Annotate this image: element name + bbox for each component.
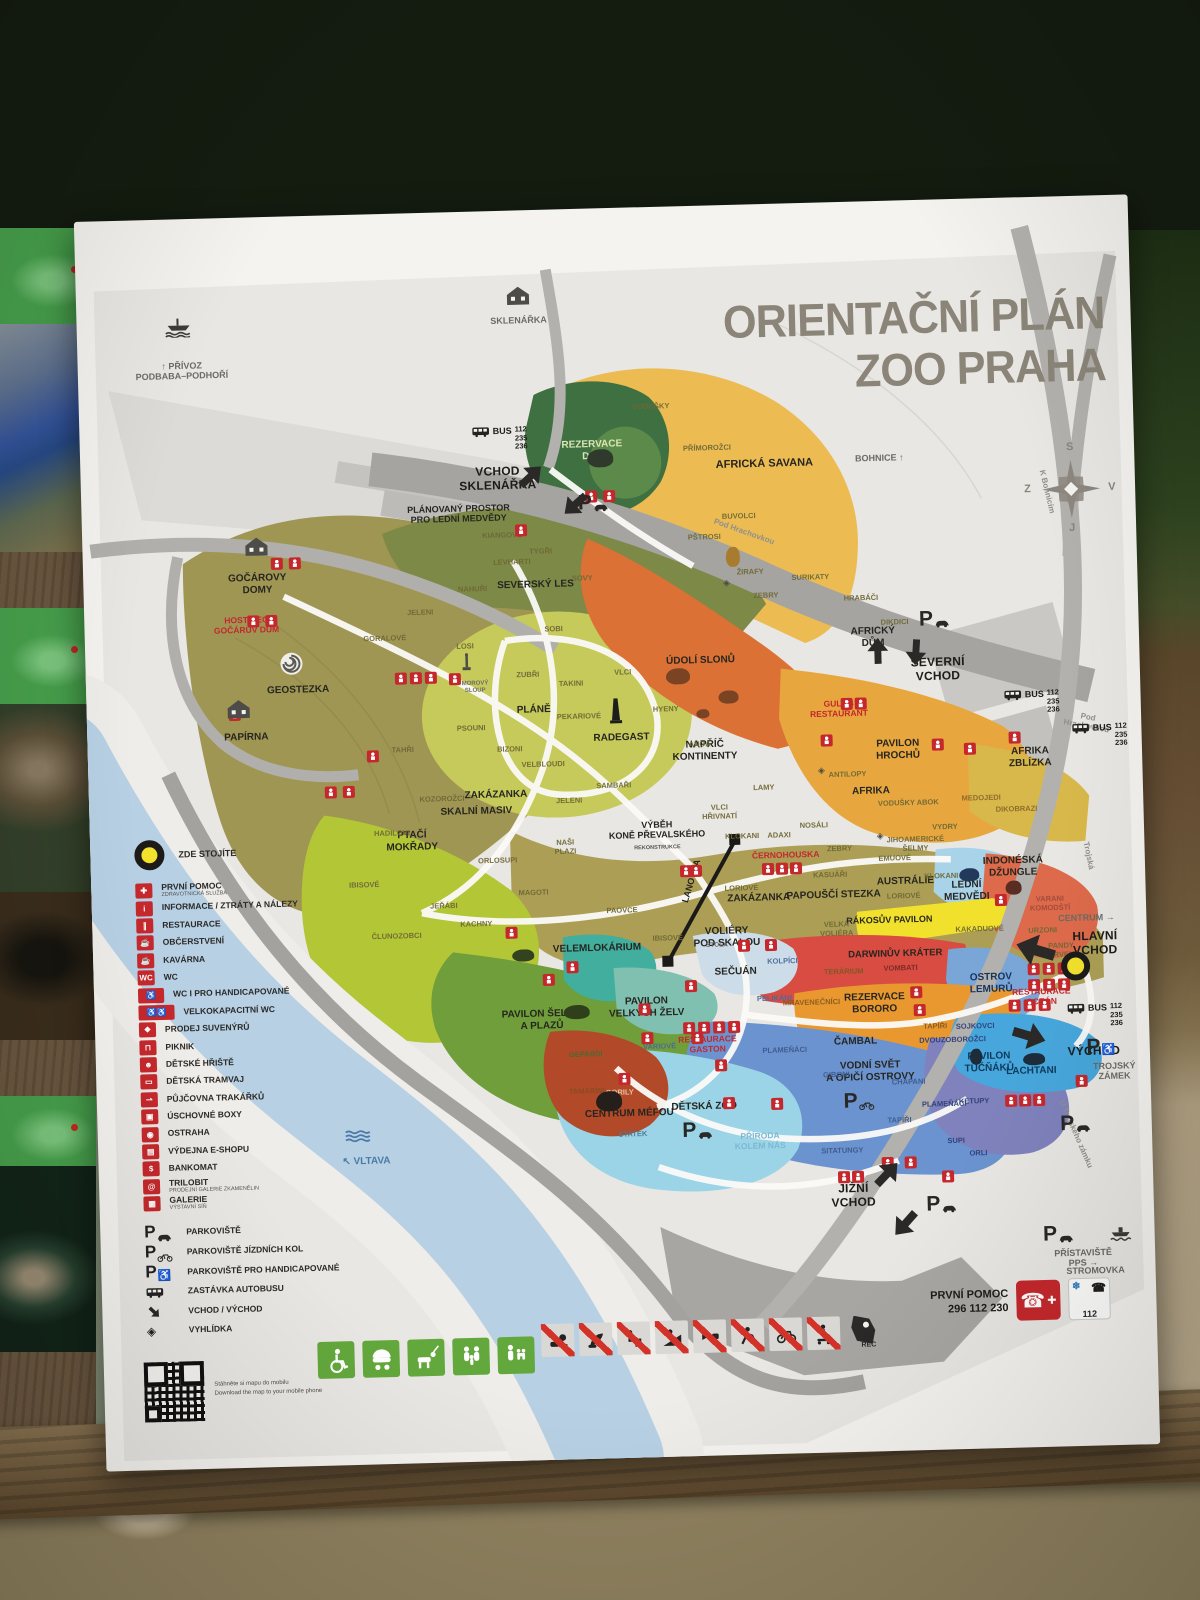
cart-rental-icon: ⇀ — [141, 1092, 158, 1107]
facility-icon — [343, 786, 355, 798]
wood-frame — [0, 552, 96, 608]
viewpoint-icon: ◈ — [877, 831, 884, 842]
legend-item-label: ZASTÁVKA AUTOBUSU — [188, 1284, 284, 1296]
playground-icon: ☻ — [140, 1057, 157, 1072]
gallery-icon: ▦ — [143, 1196, 160, 1211]
legend-item-label: PIKNIK — [165, 1042, 194, 1052]
parking-handicap-icon: P♿ — [145, 1262, 180, 1283]
legend-item-label: PARKOVIŠTĚ JÍZDNÍCH KOL — [187, 1244, 304, 1256]
facility-icon — [1019, 1094, 1031, 1106]
legend-item-label: PŮJČOVNA TRAKÁŘKŮ — [167, 1092, 265, 1104]
entrance-exit-icon — [146, 1304, 180, 1319]
first-aid-phone: 296 112 230 — [930, 1301, 1008, 1317]
facility-icon — [942, 1170, 954, 1182]
facility-icon — [325, 786, 337, 798]
facility-icon — [1058, 978, 1070, 990]
photo-of-zoo-map-sign: ORIENTAČNÍ PLÁN ZOO PRAHA S V J Z PLÁNOV… — [0, 0, 1200, 1600]
side-panel-photo-dark-animal — [0, 892, 96, 1040]
sign-title: ORIENTAČNÍ PLÁN ZOO PRAHA — [723, 287, 1107, 400]
no-feeding-icon — [541, 1323, 575, 1357]
facility-icon — [449, 673, 461, 685]
you-are-here-label: ZDE STOJÍTE — [178, 848, 236, 860]
facility-icon — [728, 1021, 740, 1033]
no-segway-icon — [807, 1316, 841, 1350]
facility-icon — [932, 738, 944, 750]
facility-icon — [995, 894, 1007, 906]
no-climbing-icon — [655, 1320, 689, 1354]
emergency-112-icon: 112 — [1068, 1277, 1111, 1320]
no-running-icon — [731, 1318, 765, 1352]
facility-icon — [855, 697, 867, 709]
dog-on-leash-icon — [407, 1339, 445, 1377]
legend-item-label: DĚTSKÉ HŘIŠTĚ — [166, 1058, 234, 1069]
facility-icon — [841, 698, 853, 710]
compass-west: Z — [1024, 483, 1031, 495]
facility-icon — [1033, 1094, 1045, 1106]
you-are-here-legend: ZDE STOJÍTE — [134, 834, 403, 871]
parking-bike-icon: P — [145, 1242, 180, 1263]
security-icon: ◉ — [142, 1127, 159, 1142]
tram-icon: ▭ — [140, 1075, 157, 1090]
facility-icon — [713, 1021, 725, 1033]
compass-east: V — [1108, 481, 1116, 493]
gorilla-silhouette-icon — [596, 1091, 623, 1112]
wood-frame — [0, 1040, 96, 1096]
parking-icon: P♿ — [1086, 1039, 1115, 1057]
legend-items: ✚PRVNÍ POMOCZDRAVOTNICKÁ SLUŽBAiINFORMAC… — [135, 876, 412, 1213]
facility-icon — [691, 1032, 703, 1044]
facility-icon — [247, 615, 259, 627]
parking-icon: P — [919, 611, 950, 629]
legend-item-label: OSTRAHA — [168, 1128, 210, 1138]
elephant-silhouette-icon — [718, 690, 738, 704]
facility-icon — [910, 986, 922, 998]
legend-item-label: PRODEJ SUVENÝRŮ — [165, 1023, 250, 1035]
cafe-icon: ☕ — [137, 953, 154, 968]
compass-south: J — [1069, 522, 1075, 534]
facility-icon — [641, 1032, 653, 1044]
facility-icon — [1075, 1075, 1087, 1087]
facility-icon — [543, 974, 555, 986]
emergency-phone-icon: ☎✚ — [1016, 1280, 1061, 1321]
facility-icon — [790, 862, 802, 874]
wheelchair-icon — [317, 1341, 355, 1379]
large-wc-icon: ♿♿ — [138, 1005, 174, 1021]
side-panel-minimap — [0, 608, 96, 704]
side-panel-photo-pangolin — [0, 704, 96, 892]
facility-icon — [566, 961, 578, 973]
facility-icon — [638, 1003, 650, 1015]
bus-stop-icon: BUS112 235 236 — [1072, 722, 1128, 749]
facility-icon — [425, 672, 437, 684]
facility-icon — [685, 980, 697, 992]
side-panel-minimap — [0, 1096, 96, 1166]
facility-icon — [690, 865, 702, 877]
facility-icon — [765, 939, 777, 951]
legend-item-label: PRVNÍ POMOCZDRAVOTNICKÁ SLUŽBA — [161, 881, 227, 898]
elephant-silhouette-icon — [666, 668, 690, 685]
stroller-icon — [362, 1340, 400, 1378]
parking-icon: P — [843, 1093, 874, 1111]
side-panel-photo-paw — [0, 1166, 96, 1352]
facility-icon — [1043, 979, 1055, 991]
legend-item-label: VELKOKAPACITNÍ WC — [183, 1005, 275, 1017]
legend-item-label: VYHLÍDKA — [189, 1324, 233, 1334]
legend-item-label: GALERIEVÝSTAVNÍ SÍŇ — [169, 1195, 207, 1211]
legend-item-label: DĚTSKÁ TRAMVAJ — [166, 1075, 244, 1086]
gorilla-silhouette-icon — [587, 449, 613, 468]
tiger-silhouette-icon — [512, 949, 534, 962]
lion-silhouette-icon — [563, 1005, 589, 1020]
facility-icon — [1008, 731, 1020, 743]
snack-icon: ☕ — [137, 936, 154, 951]
restaurant-icon: ∥ — [136, 918, 153, 933]
viewpoint-icon: ◈ — [723, 577, 730, 588]
facility-icon — [715, 1059, 727, 1071]
picnic-icon: ⊓ — [139, 1040, 156, 1055]
legend-item-label: PARKOVIŠTĚ — [186, 1226, 241, 1237]
guided-group-icon — [497, 1336, 535, 1374]
no-teasing-animals-icon — [693, 1319, 727, 1353]
entrance-arrow-icon — [867, 638, 893, 665]
facility-icon — [618, 1073, 630, 1085]
facility-icon — [771, 1098, 783, 1110]
title-line-2: ZOO PRAHA — [724, 339, 1107, 400]
viewpoint-icon: ◈ — [818, 765, 825, 776]
bus-stop-icon: BUS112 235 236 — [1067, 1002, 1123, 1029]
facility-icon — [905, 1156, 917, 1168]
parking-icon: P — [1060, 1115, 1091, 1133]
legend-item-label: WC — [164, 973, 178, 983]
map-legend: ZDE STOJÍTE ✚PRVNÍ POMOCZDRAVOTNICKÁ SLU… — [134, 834, 415, 1341]
facility-icon — [820, 734, 832, 746]
sea-lion-silhouette-icon — [1023, 1053, 1045, 1066]
facility-icon — [515, 524, 527, 536]
facility-icon — [852, 1171, 864, 1183]
legend-item-label: TRILOBITPRODEJNÍ GALERIE ZKAMENĚLIN — [169, 1176, 259, 1194]
accessibility-icons-row — [317, 1336, 535, 1379]
polar-bear-silhouette-icon — [959, 868, 979, 882]
no-littering-icon — [617, 1321, 651, 1355]
info-icon: i — [136, 901, 153, 916]
svg-text:REC: REC — [861, 1341, 876, 1348]
facility-icon — [914, 1004, 926, 1016]
facility-icon — [776, 863, 788, 875]
legend-item-label: BANKOMAT — [169, 1163, 218, 1174]
parking-car-icon: P — [144, 1222, 179, 1243]
facility-icon — [265, 615, 277, 627]
facility-icon — [1038, 999, 1050, 1011]
parking-icon: P — [682, 1122, 713, 1140]
qr-code — [144, 1361, 206, 1423]
bus-stop-icon — [146, 1286, 180, 1298]
trilobite-icon: @ — [143, 1179, 160, 1194]
lockers-icon: ▣ — [141, 1109, 158, 1124]
wc-handicap-icon: ♿ — [138, 987, 164, 1003]
facility-icon — [1005, 1095, 1017, 1107]
wc-icon: WC — [137, 970, 154, 985]
compass-north: S — [1066, 441, 1074, 453]
facility-icon — [410, 672, 422, 684]
atm-icon: $ — [142, 1162, 159, 1177]
you-are-here-icon — [134, 840, 165, 871]
facility-icon — [395, 672, 407, 684]
penguin-silhouette-icon — [970, 1049, 982, 1065]
camera-rec-icon: REC — [845, 1315, 880, 1349]
facility-icon — [1009, 999, 1021, 1011]
first-aid-contact: PRVNÍ POMOC 296 112 230 ☎✚ 112 — [930, 1277, 1111, 1324]
facility-icon — [271, 558, 283, 570]
facility-icon — [289, 557, 301, 569]
parking-icon: P — [926, 1196, 957, 1214]
entrance-arrow-icon — [900, 638, 927, 666]
first-aid-icon: ✚ — [135, 883, 152, 898]
legend-item-label: VÝDEJNA E-SHOPU — [168, 1145, 249, 1156]
facility-icon — [1023, 999, 1035, 1011]
eshop-pickup-icon: ▤ — [142, 1144, 159, 1159]
legend-item-label: RESTAURACE — [162, 919, 221, 930]
bus-stop-icon: BUS112 235 236 — [472, 425, 528, 452]
facility-icon — [964, 743, 976, 755]
facility-icon — [367, 750, 379, 762]
legend-item-label: KAVÁRNA — [163, 954, 205, 964]
legend-item-label: WC I PRO HANDICAPOVANÉ — [173, 987, 290, 999]
facility-icon — [738, 940, 750, 952]
facility-icon — [1028, 979, 1040, 991]
zoo-map-board: ORIENTAČNÍ PLÁN ZOO PRAHA S V J Z PLÁNOV… — [74, 194, 1160, 1471]
bus-stop-icon: BUS112 235 236 — [1004, 688, 1060, 715]
legend-item-label: VCHOD / VÝCHOD — [188, 1304, 262, 1315]
viewpoint-icon: ◈ — [147, 1324, 181, 1337]
facility-icon — [505, 927, 517, 939]
qr-caption: Stáhněte si mapu do mobilu Download the … — [214, 1378, 322, 1399]
legend-item-label: OBČERSTVENÍ — [163, 937, 225, 948]
legend-item-label: ÚSCHOVNÉ BOXY — [167, 1110, 242, 1121]
facility-icon — [723, 1097, 735, 1109]
no-cycling-icon — [769, 1317, 803, 1351]
facility-icon — [838, 1171, 850, 1183]
legend-transport: PPARKOVIŠTĚPPARKOVIŠTĚ JÍZDNÍCH KOLP♿PAR… — [144, 1216, 415, 1341]
parking-icon: P — [1043, 1226, 1074, 1244]
souvenirs-icon: ❖ — [139, 1022, 156, 1037]
legend-item-label: INFORMACE / ZTRÁTY A NÁLEZY — [162, 900, 298, 913]
elephant-calf-silhouette-icon — [696, 709, 709, 718]
orangutan-silhouette-icon — [1005, 880, 1021, 894]
no-picking-plants-icon — [579, 1322, 613, 1356]
giraffe-silhouette-icon — [726, 547, 741, 567]
legend-item-label: PARKOVIŠTĚ PRO HANDICAPOVANÉ — [187, 1263, 339, 1276]
facility-icon — [229, 709, 241, 721]
family-icon — [452, 1338, 490, 1376]
emergency-number: 112 — [1082, 1309, 1097, 1319]
facility-icon — [762, 863, 774, 875]
compass-rose-icon: S V J Z — [1035, 453, 1107, 525]
